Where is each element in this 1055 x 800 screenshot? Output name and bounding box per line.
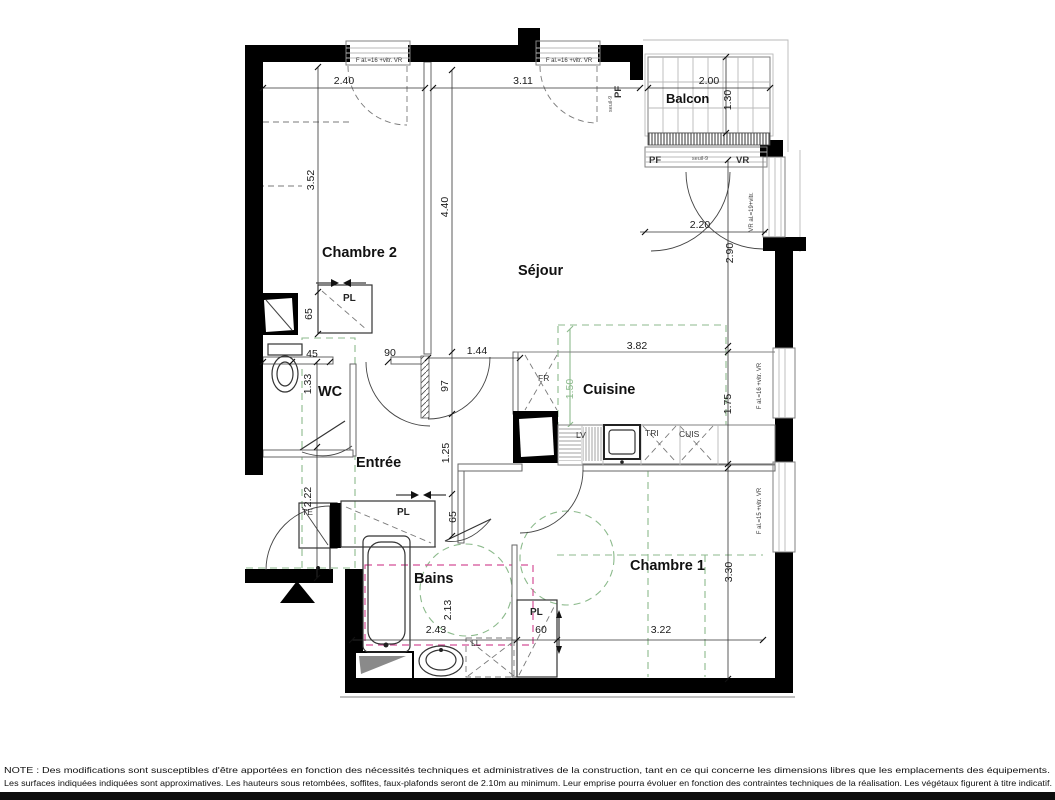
dim-3-52: 3.52 xyxy=(305,170,317,191)
fridge-label: FR xyxy=(538,373,549,383)
closet-label-chambre2: PL xyxy=(343,293,356,304)
interior-partitions xyxy=(263,62,775,677)
washing-machine-label: LL xyxy=(471,638,481,648)
window-chambre1 xyxy=(773,462,795,552)
note-line-1: NOTE : Des modifications sont susceptibl… xyxy=(4,765,1050,775)
electrical-panel-label: TE xyxy=(302,507,313,517)
duct-shaft-wc xyxy=(258,293,298,335)
dim-3-30: 3.30 xyxy=(723,562,735,583)
dim-2-22: 2.22 xyxy=(302,487,314,508)
dim-2-13: 2.13 xyxy=(442,600,454,621)
sliding-door-arrows-entree xyxy=(396,491,446,499)
floor-plan-page: Chambre 2 Séjour WC Cuisine Entrée Bains… xyxy=(0,0,1055,800)
dim-1-50-green: 1.50 xyxy=(564,379,576,400)
window-label-sejour: F al.=16 +vitr. VR xyxy=(546,58,593,64)
closet-label-entree: PL xyxy=(397,507,410,518)
duct-shaft-bottom xyxy=(355,652,413,679)
balcony-railing-hatch xyxy=(648,133,770,145)
dim-4-40: 4.40 xyxy=(439,197,451,218)
note-block: NOTE : Des modifications sont susceptibl… xyxy=(0,765,1055,800)
room-label-bains: Bains xyxy=(414,571,454,587)
dishwasher-label: LV xyxy=(576,430,586,440)
dim-60: 60 xyxy=(535,624,547,636)
kitchen-sink xyxy=(604,425,640,464)
room-label-sejour: Séjour xyxy=(518,263,563,279)
entrance-arrow xyxy=(280,581,315,603)
seuil-label: seuil-9 xyxy=(692,156,708,162)
washbasin xyxy=(419,646,463,676)
dim-45: 45 xyxy=(306,348,318,360)
dim-2-43: 2.43 xyxy=(426,624,447,636)
dim-3-11: 3.11 xyxy=(513,75,533,87)
floor-plan-svg: Chambre 2 Séjour WC Cuisine Entrée Bains… xyxy=(0,0,1055,800)
room-label-balcon: Balcon xyxy=(666,91,709,106)
dim-65-pl-entree: 65 xyxy=(447,511,459,523)
pf-label: PF xyxy=(649,155,661,166)
room-label-wc: WC xyxy=(318,384,343,400)
dim-1-30: 1.30 xyxy=(722,90,734,111)
closet-label-chambre1: PL xyxy=(530,607,543,618)
kitchen-counter xyxy=(558,425,775,465)
dim-2-90: 2.90 xyxy=(724,243,736,264)
dimension-labels-vertical: 3.52 4.40 1.30 2.90 65 1.33 97 1.25 65 2… xyxy=(302,90,736,621)
dim-2-20: 2.20 xyxy=(690,219,711,231)
dim-2-00: 2.00 xyxy=(699,75,720,87)
sliding-door-arrows-chambre2 xyxy=(316,279,366,287)
room-label-chambre1: Chambre 1 xyxy=(630,558,705,574)
dim-1-25: 1.25 xyxy=(440,443,452,464)
window-label-side: VR al.=19+vitr. xyxy=(749,192,755,232)
toilet xyxy=(268,344,302,392)
dim-1-33: 1.33 xyxy=(302,374,314,395)
window-label-cuisine: F al.=16 +vitr. VR xyxy=(757,362,763,409)
sejour-door-leaf xyxy=(421,356,429,418)
room-label-chambre2: Chambre 2 xyxy=(322,245,397,261)
dim-65-pl2: 65 xyxy=(303,308,315,320)
green-equipment-outlines xyxy=(246,325,763,677)
pf-label-vertical: PF xyxy=(613,86,624,98)
window-label-chambre1: F al.=15 +vitr. VR xyxy=(757,487,763,534)
vr-label: VR xyxy=(736,155,749,166)
seuil-label-vertical: seuil-9 xyxy=(608,96,614,112)
opening-labels: PF VR seuil-9 PF seuil-9 F al.=16 +vitr.… xyxy=(356,58,763,534)
window-sejour-side xyxy=(763,157,785,237)
dim-1-44: 1.44 xyxy=(467,345,488,357)
dim-1-75: 1.75 xyxy=(722,394,734,415)
note-line-2: Les surfaces indiquées indiquées sont ap… xyxy=(4,778,1052,788)
duct-shaft-kitchen xyxy=(513,411,558,463)
window-cuisine xyxy=(773,348,795,418)
dim-3-22: 3.22 xyxy=(651,624,672,636)
dim-2-40: 2.40 xyxy=(334,75,355,87)
dim-3-82: 3.82 xyxy=(627,340,648,352)
bottom-bar xyxy=(0,792,1055,800)
dim-97: 97 xyxy=(439,380,451,392)
dim-90: 90 xyxy=(384,347,396,359)
cooker-label: CUIS xyxy=(679,429,700,439)
bathtub xyxy=(363,536,410,652)
tri-label: TRI xyxy=(645,428,659,438)
fixtures xyxy=(258,279,775,679)
room-label-cuisine: Cuisine xyxy=(583,382,635,398)
room-label-entree: Entrée xyxy=(356,455,401,471)
window-label-chambre2: F al.=16 +vitr. VR xyxy=(356,58,403,64)
